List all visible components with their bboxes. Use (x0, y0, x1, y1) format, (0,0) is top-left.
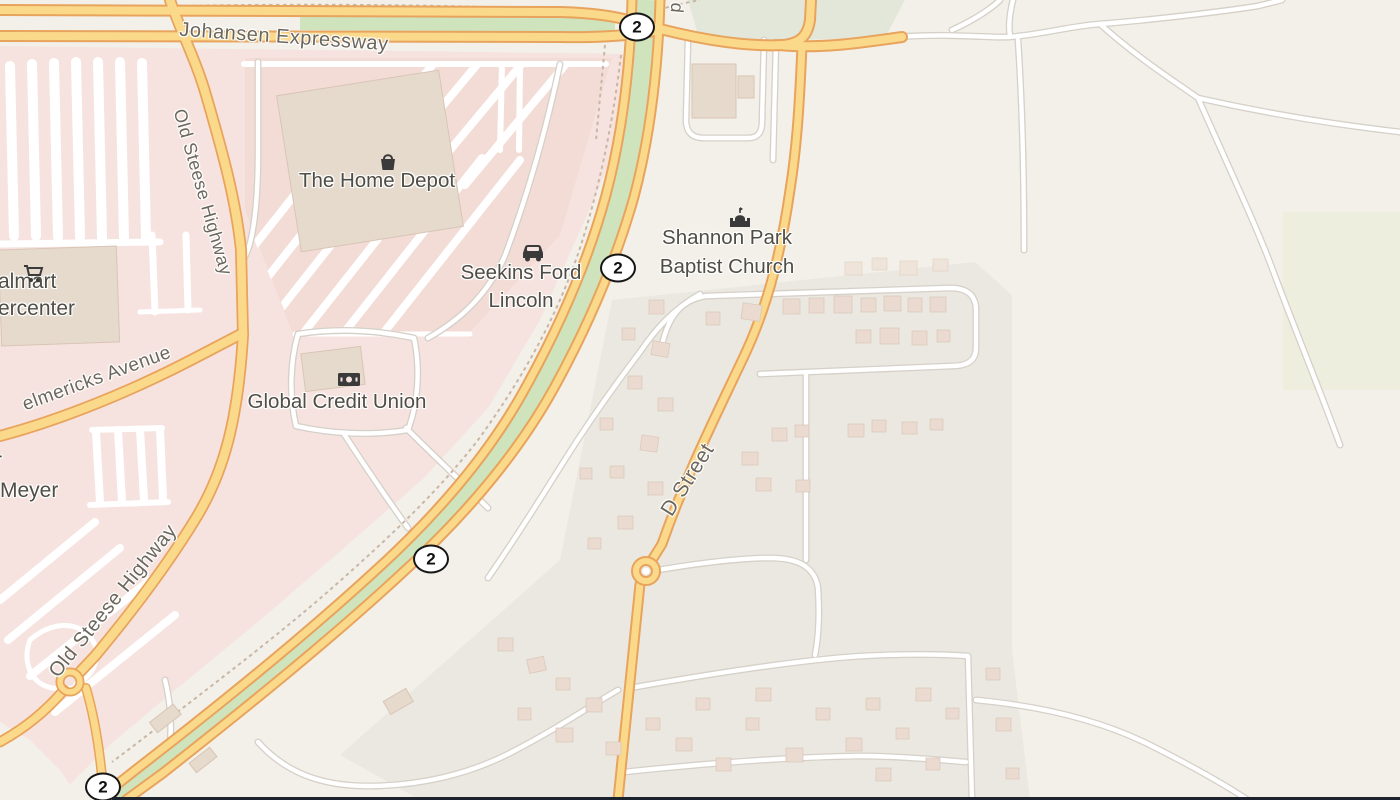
walmart-line2: ercenter (0, 295, 75, 322)
route-2-shield-bottom-left: 2 (85, 773, 121, 800)
place-label-seekins-ford-lincoln: Seekins Ford Lincoln (461, 259, 582, 315)
church-line2: Baptist Church (660, 252, 794, 281)
route-2-shield-mid: 2 (600, 254, 636, 283)
place-label-meyer-fragment: r (0, 447, 2, 475)
place-label-global-credit-union: Global Credit Union (248, 388, 427, 416)
map-canvas[interactable] (0, 0, 1400, 800)
route-2-shield-top: 2 (619, 13, 655, 42)
place-label-shannon-park-baptist-church: Shannon Park Baptist Church (660, 223, 794, 281)
seekins-line1: Seekins Ford (461, 259, 582, 287)
road-label-top-edge-fragment: d (663, 2, 692, 15)
place-label-fred-meyer: Meyer (0, 477, 58, 505)
seekins-line2: Lincoln (461, 287, 582, 315)
route-2-shield-lower: 2 (413, 545, 449, 574)
map[interactable]: Johansen Expressway Old Steese Highway O… (0, 0, 1400, 800)
